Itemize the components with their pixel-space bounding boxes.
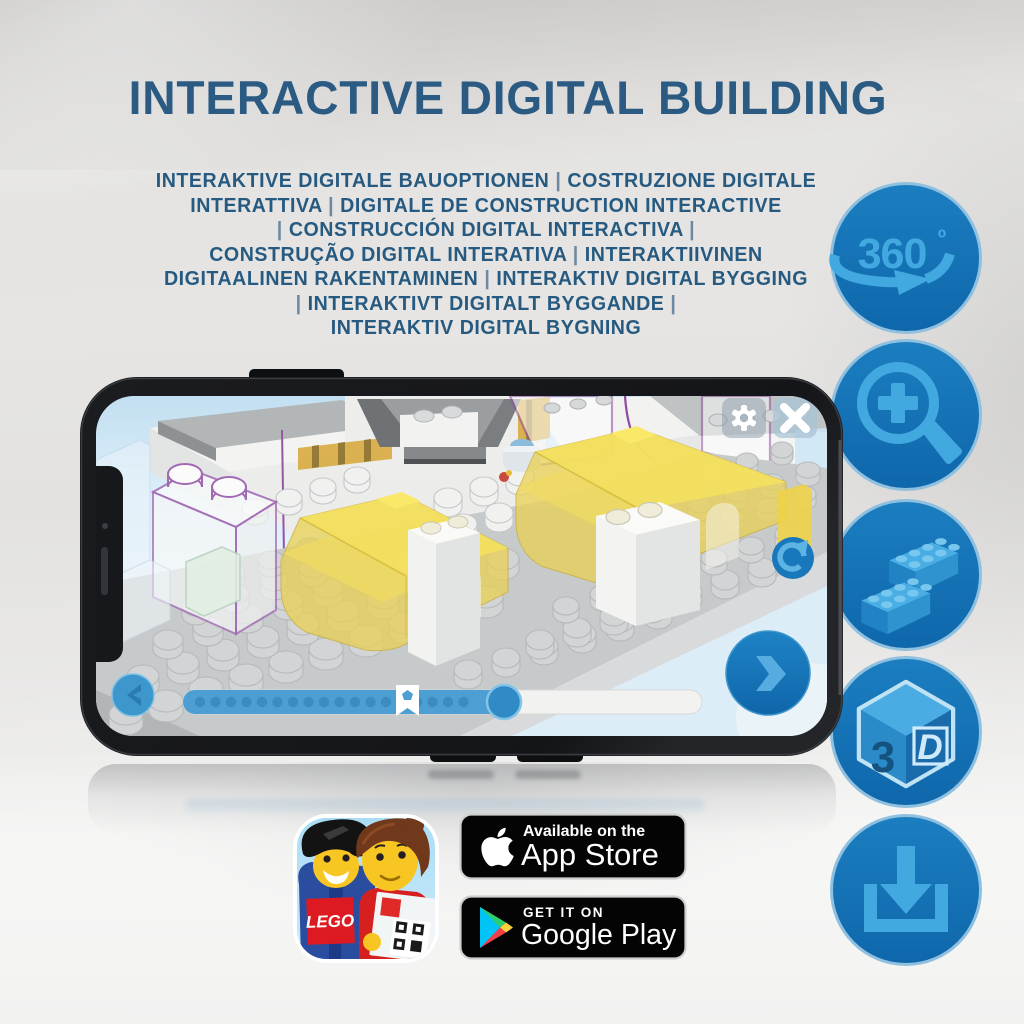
svg-text:LEGO: LEGO — [306, 911, 355, 932]
svg-text:GET IT ON: GET IT ON — [523, 905, 604, 920]
svg-text:Google Play: Google Play — [521, 919, 677, 951]
svg-text:App Store: App Store — [521, 837, 659, 872]
